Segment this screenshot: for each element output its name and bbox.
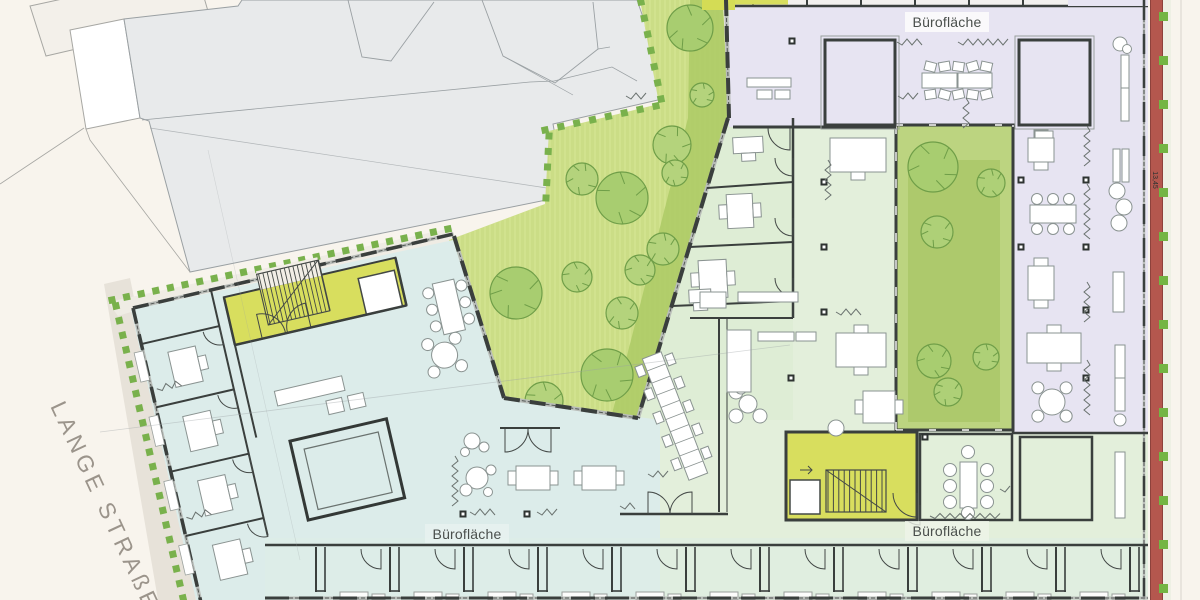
svg-text:13,45: 13,45 [1151,171,1158,189]
svg-text:Bürofläche: Bürofläche [913,14,982,30]
svg-text:Bürofläche: Bürofläche [433,526,502,542]
svg-text:Bürofläche: Bürofläche [913,523,982,539]
